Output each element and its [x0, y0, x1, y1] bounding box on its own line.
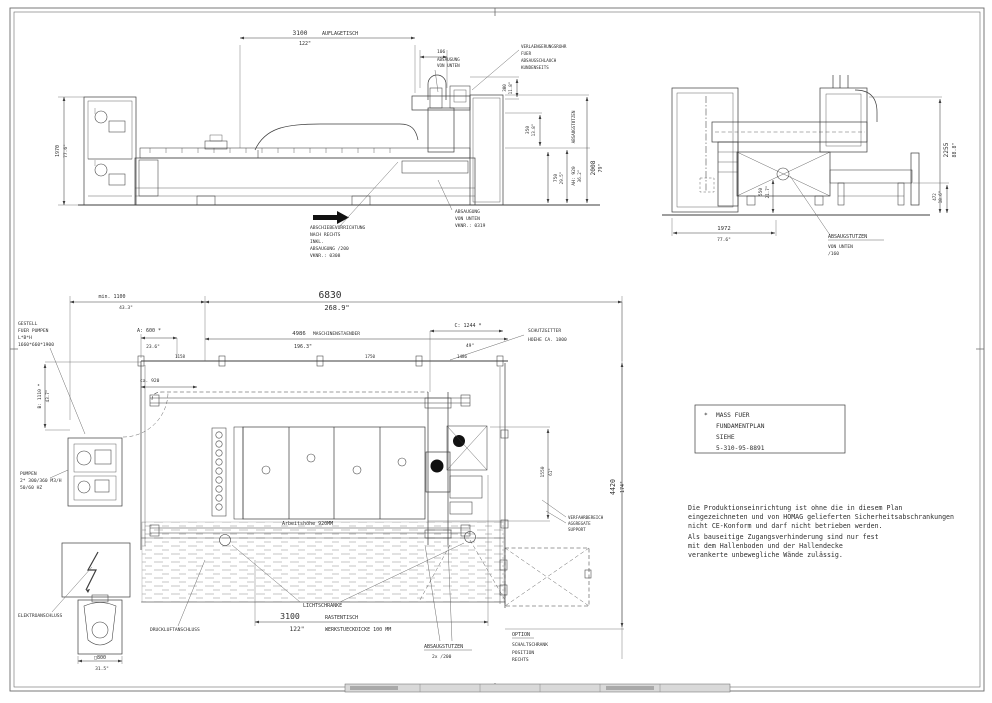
verlaengerung-4: KUNDENSEITS [521, 65, 549, 70]
dim-3100-rastentisch-inch: 122" [290, 626, 305, 633]
dim-2008-mm: 2008 [590, 160, 597, 175]
front-view: 3100 AUFLAGETISCH 122" 106 ABSAUGUNG VON… [55, 30, 604, 259]
ce-note-line-6: verankerte unbewegliche Wände zulässig. [688, 551, 843, 559]
dim-1550-inch: 61" [548, 468, 553, 476]
lightning-icon [86, 552, 98, 590]
gestell-4: 1660*660*1900 [18, 342, 54, 348]
dim-3100-rastentisch-mm: 3100 [280, 611, 300, 621]
dim-a600-mm: A: 600 * [137, 328, 161, 334]
dim-4986-mm: 4986 [292, 331, 305, 337]
dim-b1110-mm: B: 1110 * [37, 383, 43, 408]
dim-1972-mm: 1972 [717, 226, 730, 232]
notes: * MASS FUER FUNDAMENTPLAN SIEHE 5-310-95… [688, 405, 954, 559]
dim-4420-inch: 174" [620, 481, 626, 493]
gantry-front [255, 75, 470, 158]
absaugung-vknr-3: VKNR.: 0319 [455, 223, 486, 229]
schutzgitter-2: HOEHE CA. 1800 [528, 337, 567, 343]
absaugung-vknr-1: ABSAUGUNG [455, 209, 480, 215]
segment-dim-2: 1750 [365, 354, 376, 359]
arbeitshoehe-label: Arbeitshöhe 920MM [282, 521, 333, 527]
drag-chain [255, 124, 418, 150]
dim-472-inch: 18.6" [938, 191, 943, 204]
ce-note-line-2: eingezeichneten und von HOMAG gelieferte… [688, 513, 954, 521]
pumpen-2: 2* 300/360 M3/H [20, 478, 62, 484]
dim-3100-auflagetisch-mm: 3100 [293, 30, 308, 37]
segment-dim-3: 1486 [457, 354, 468, 359]
technical-drawing: 3100 AUFLAGETISCH 122" 106 ABSAUGUNG VON… [0, 0, 992, 699]
side-view: 2255 88.8" 550 21.7" 472 18.6" 1972 77.6… [662, 75, 958, 257]
dim-2255-mm: 2255 [943, 142, 950, 157]
pump-cabinet-front [84, 97, 136, 205]
gestell-3: L*B*H [18, 335, 32, 341]
lichtschranke-label: LICHTSCHRANKE [303, 603, 342, 609]
fundament-line-1: MASS FUER [716, 412, 750, 419]
pumpen-1: PUMPEN [20, 471, 37, 477]
schutzgitter-1: SCHUTZGITTER [528, 328, 561, 334]
verfahrbereich-2: AGGREGATE [568, 521, 591, 526]
dim-4420-mm: 4420 [609, 479, 617, 495]
elektroanschluss-label: ELEKTROANSCHLUSS [18, 613, 62, 619]
fundament-line-2: FUNDAMENTPLAN [716, 423, 765, 430]
dim-3100-auflagetisch-label: AUFLAGETISCH [322, 31, 358, 37]
verlaengerung-1: VERLAENGERUNGSROHR [521, 44, 567, 49]
machine-bed-front [135, 135, 475, 205]
dim-a600-inch: 23.6" [146, 344, 160, 350]
absaugung-von-unten-1: ABSAUGUNG [437, 57, 460, 62]
werkstueckdicke-label: WERKSTUECKDICKE 100 MM [325, 627, 391, 633]
dim-300-mm: 300 [502, 84, 507, 92]
dim-800-mm: □800 [94, 655, 106, 661]
dim-min1100-mm: min. 1100 [98, 294, 125, 300]
abschiebe-2: NACH RECHTS [310, 232, 341, 238]
gestell-2: FUER PUMPEN [18, 328, 49, 334]
option-1: OPTION [512, 632, 530, 638]
dim-6830-mm: 6830 [318, 290, 341, 301]
dim-ah920-inch: 36.2" [577, 170, 582, 183]
ce-note-line-4: Als bauseitige Zugangsverhinderung sind … [688, 533, 879, 541]
dim-2255-inch: 88.8" [952, 142, 958, 157]
option-3: POSITION [512, 650, 534, 656]
dim-472-mm: 472 [932, 193, 937, 201]
pump-cabinet-plan [68, 438, 122, 506]
machine-side [712, 75, 912, 206]
absaugstutzen-vertical-label: ABSAUGSTUTZEN [571, 110, 576, 143]
abschiebe-3: INKL. [310, 239, 324, 245]
plan-absaugstutzen-qty: 2x /200 [432, 654, 452, 660]
absaugung-von-unten-2: VON UNTEN [437, 63, 460, 68]
dim-1970-mm: 1970 [55, 145, 61, 157]
dim-300-inch: 11.8" [508, 82, 513, 95]
dim-1550-mm: 1550 [540, 466, 546, 477]
plan-absaugstutzen-label: ABSAUGSTUTZEN [424, 644, 463, 650]
abschiebe-1: ABSCHIEBEVORRICHTUNG [310, 225, 366, 231]
fence-side [672, 88, 919, 212]
title-strip [345, 684, 730, 692]
aggregate-dot [431, 460, 444, 473]
option-2: SCHALTSCHRANK [512, 642, 548, 648]
dim-c1244-mm: C: 1244 * [454, 323, 481, 329]
dim-6830-inch: 268.9" [324, 304, 349, 312]
dim-106: 106 [437, 49, 446, 55]
drawing-sheet: 3100 AUFLAGETISCH 122" 106 ABSAUGUNG VON… [0, 0, 992, 699]
pumpen-3: 50/60 HZ [20, 485, 42, 491]
fundament-line-3: SIEHE [716, 434, 735, 441]
side-absaugstutzen-2: VON UNTEN [828, 244, 853, 250]
machine-foot [78, 595, 122, 654]
dim-2008-inch: 79" [598, 163, 604, 172]
side-absaugstutzen-1: ABSAUGSTUTZEN [828, 234, 867, 240]
dim-min1100-inch: 43.3" [119, 305, 133, 311]
druckluftanschluss-label: DRUCKLUFTANSCHLUSS [150, 627, 200, 633]
dim-c1244-inch: 49" [466, 343, 474, 349]
dim-b1110-inch: 43.7" [45, 390, 50, 403]
absaugung-vknr-2: VON UNTEN [455, 216, 480, 222]
dim-1972-inch: 77.6" [717, 237, 731, 243]
ce-note-line-5: mit dem Hallenboden und der Hallendecke [688, 542, 843, 550]
segment-dim-1: 1158 [175, 354, 186, 359]
verfahrbereich-3: SUPPORT [568, 527, 586, 532]
rastentisch-label: RASTENTISCH [325, 615, 358, 621]
dim-1970-inch: 77.6" [63, 144, 69, 158]
aggregate-dot-2 [453, 435, 465, 447]
abschiebe-5: VKNR.: 0308 [310, 253, 341, 259]
side-absaugstutzen-3: /160 [828, 251, 839, 257]
abschiebe-4: ABSAUGUNG /200 [310, 246, 349, 252]
dim-550-inch: 21.7" [765, 186, 770, 199]
ce-note-line-3: nicht CE-Konform und darf nicht betriebe… [688, 522, 883, 530]
option-4: RECHTS [512, 657, 529, 663]
elektro-box [62, 543, 130, 597]
verfahrbereich-1: VERFAHRBEREICH [568, 515, 604, 520]
dim-750-inch: 29.5" [559, 172, 564, 185]
dim-4986-inch: 196.3" [294, 344, 312, 350]
fundament-asterisk: * [704, 412, 708, 419]
fundament-line-4: 5-310-95-8891 [716, 445, 765, 452]
ce-note-line-1: Die Produktionseinrichtung ist ohne die … [688, 504, 902, 512]
dim-3100-auflagetisch-inch: 122" [299, 41, 311, 47]
dim-350-inch: 13.8" [531, 124, 536, 137]
dim-4986-label: MASCHINENSTAENDER [313, 331, 360, 337]
verlaengerung-2: FUER [521, 51, 532, 56]
dim-550-mm: 550 [758, 188, 764, 197]
plan-view: min. 1100 43.3" 6830 268.9" A: 600 * 23.… [18, 290, 626, 672]
dim-ca920: ca. 920 [140, 378, 160, 384]
verlaengerung-3: ABSAUGSCHLAUCH [521, 58, 557, 63]
gestell-1: GESTELL [18, 321, 38, 327]
dim-800-inch: 31.5" [95, 666, 109, 672]
option-cabinet [500, 548, 591, 606]
